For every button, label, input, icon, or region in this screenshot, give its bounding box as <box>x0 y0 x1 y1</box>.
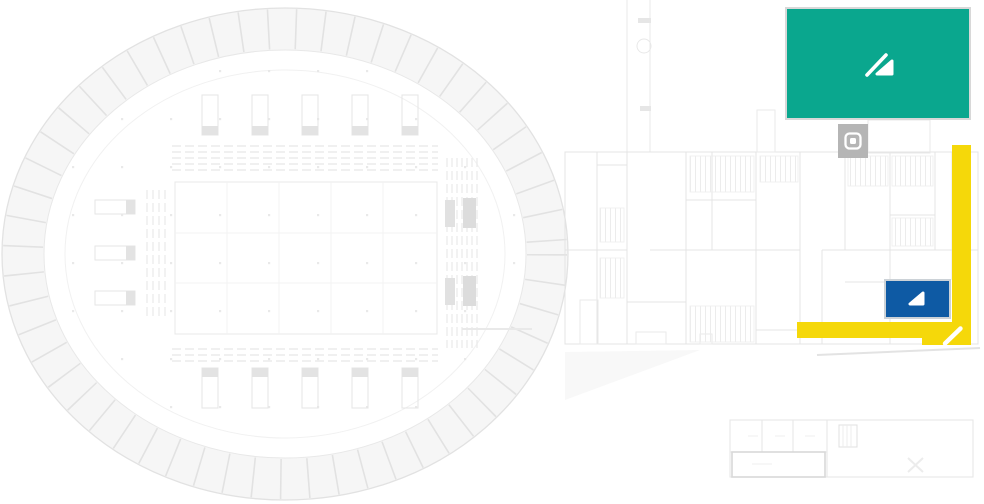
highlight-overlay <box>0 0 984 504</box>
floorplan-canvas <box>0 0 984 504</box>
